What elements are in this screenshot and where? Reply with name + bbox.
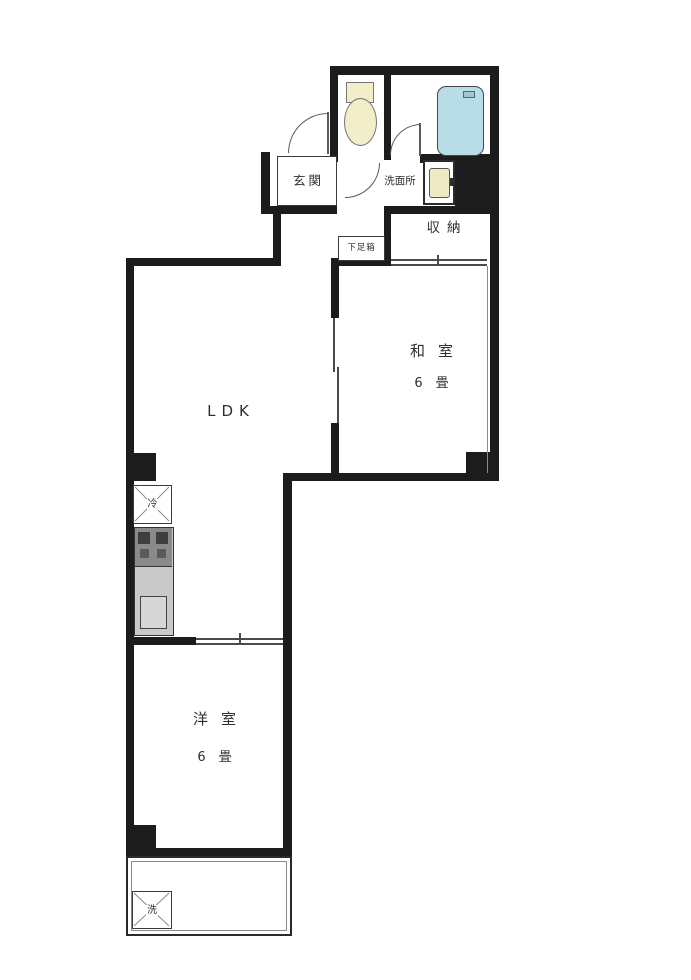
refrigerator-label: 冷 (147, 499, 159, 510)
washbasin-bowl (429, 168, 450, 198)
toilet-bowl (344, 98, 377, 146)
floorplan: 玄関 下足箱 冷 洗 洗面所 (0, 0, 691, 980)
stove-burner (156, 532, 168, 544)
wall (283, 473, 292, 857)
wall (126, 637, 196, 645)
wall-pillar (127, 825, 156, 853)
bathtub-fixture (437, 86, 484, 156)
stove-burner (138, 532, 150, 544)
kitchen-unit (134, 527, 174, 636)
wall (331, 258, 339, 318)
shoe-cabinet-box: 下足箱 (338, 236, 385, 261)
shuunou-label: 収納 (405, 221, 482, 236)
wall (490, 66, 499, 481)
wall-pillar (127, 453, 156, 481)
wall-shaft-fill (455, 158, 495, 212)
sliding-door-washitsu (333, 318, 335, 372)
bath-door-arc (390, 124, 421, 155)
bath-door-leaf (419, 123, 421, 156)
wall-inner-line (487, 266, 488, 473)
washitsu-label: 和室 (385, 343, 478, 360)
shoe-cabinet-label: 下足箱 (347, 244, 376, 253)
youshitsu-size-label: 6畳 (168, 751, 261, 765)
wall (261, 152, 270, 214)
genkan-label: 玄関 (290, 174, 324, 188)
sliding-door-washitsu (337, 367, 339, 423)
stove-burner (157, 549, 166, 558)
refrigerator-box: 冷 (133, 485, 172, 524)
wall (330, 66, 338, 162)
wall (126, 258, 134, 854)
sliding-door-closet (391, 264, 487, 266)
youshitsu-label: 洋室 (168, 711, 261, 728)
sliding-door-closet (391, 259, 487, 261)
sink-fixture (140, 596, 167, 629)
washitsu-size-label: 6畳 (385, 377, 478, 391)
sliding-door-tick (239, 633, 241, 645)
wall (384, 206, 499, 214)
wall (330, 66, 499, 75)
washer-label: 洗 (146, 905, 158, 916)
senmenjo-label: 洗面所 (374, 176, 426, 188)
sliding-door-tick (437, 255, 439, 266)
washbasin-faucet (450, 178, 455, 186)
ldk-label: LDK (190, 403, 266, 420)
wall (127, 258, 281, 266)
washer-box: 洗 (132, 891, 172, 929)
stove-burner (140, 549, 149, 558)
genkan-step-box: 玄関 (277, 156, 337, 206)
stove-fixture (135, 528, 172, 567)
wall (384, 206, 391, 264)
entry-door-leaf (327, 112, 329, 154)
bath-faucet (463, 91, 475, 98)
entry-door-arc (288, 113, 328, 153)
